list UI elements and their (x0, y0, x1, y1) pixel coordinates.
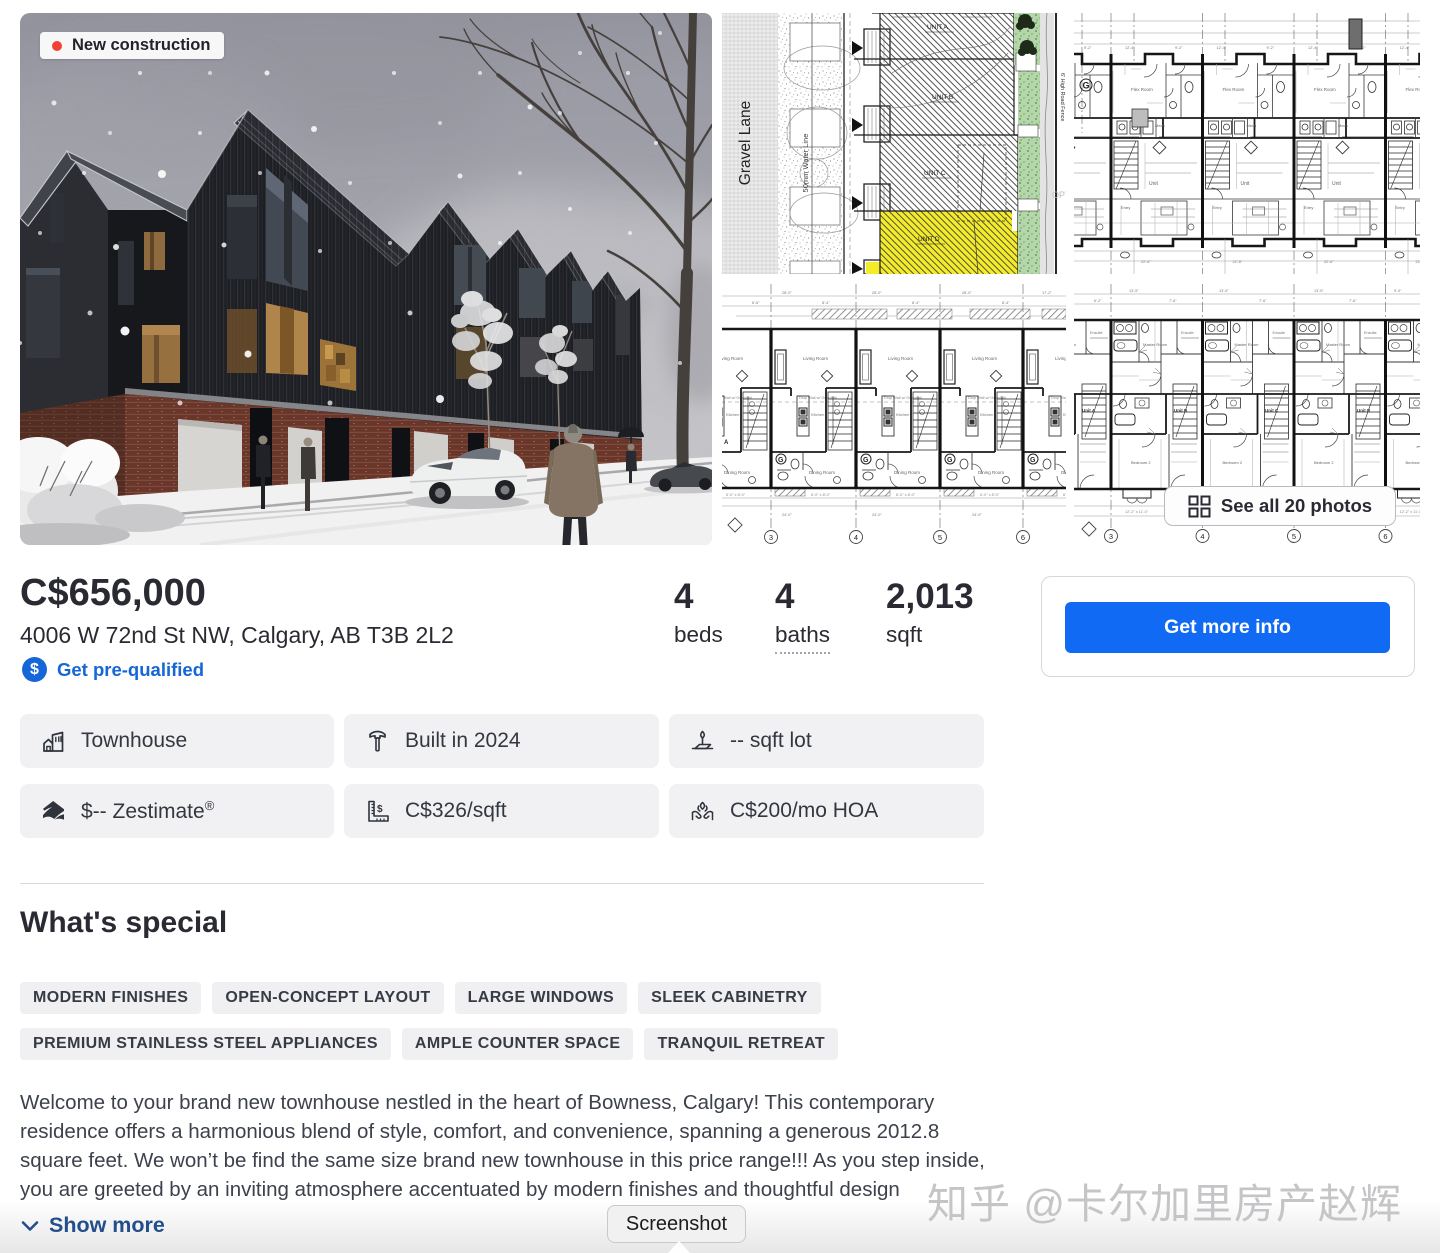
svg-text:OPT: OPT (1052, 190, 1066, 200)
svg-text:8'-4": 8'-4" (822, 301, 830, 305)
svg-text:28'-0": 28'-0" (962, 291, 972, 295)
svg-text:8'-4": 8'-4" (1002, 301, 1010, 305)
svg-text:4: 4 (1200, 532, 1204, 541)
svg-text:Unit B: Unit B (1174, 408, 1188, 413)
svg-text:UNIT B: UNIT B (932, 94, 953, 101)
svg-text:$: $ (377, 804, 383, 815)
svg-text:4: 4 (854, 533, 858, 542)
svg-text:50mm Water Line: 50mm Water Line (801, 134, 810, 193)
svg-text:Unit D: Unit D (1357, 408, 1371, 413)
svg-text:13'-5": 13'-5" (1219, 289, 1229, 293)
svg-text:UNIT A: UNIT A (927, 24, 948, 31)
svg-text:6: 6 (1383, 532, 1387, 541)
svg-text:6'-2": 6'-2" (1094, 299, 1102, 303)
svg-text:24'-0": 24'-0" (782, 513, 792, 517)
svg-text:5: 5 (1292, 532, 1296, 541)
svg-text:28'-0": 28'-0" (782, 291, 792, 295)
svg-text:7'-6": 7'-6" (1349, 299, 1357, 303)
svg-text:24'-0": 24'-0" (972, 513, 982, 517)
svg-text:3: 3 (1109, 532, 1113, 541)
svg-text:17'-2": 17'-2" (1042, 291, 1052, 295)
svg-text:Unit A: Unit A (1082, 408, 1096, 413)
svg-text:24'-0": 24'-0" (872, 513, 882, 517)
svg-text:Unit C: Unit C (1265, 408, 1279, 413)
svg-text:6' High Road Fence: 6' High Road Fence (1059, 73, 1065, 121)
svg-text:9'-0": 9'-0" (1394, 289, 1402, 293)
svg-text:7'-6": 7'-6" (1169, 299, 1177, 303)
svg-text:28'-0": 28'-0" (872, 291, 882, 295)
svg-text:3: 3 (769, 533, 773, 542)
svg-text:A: A (724, 440, 729, 446)
svg-text:5: 5 (938, 533, 942, 542)
svg-text:Gravel Lane: Gravel Lane (737, 101, 754, 185)
svg-text:13'-5": 13'-5" (1314, 289, 1324, 293)
svg-text:8'-4": 8'-4" (912, 301, 920, 305)
svg-text:13'-5": 13'-5" (1129, 289, 1139, 293)
svg-text:7'-6": 7'-6" (1259, 299, 1267, 303)
svg-text:UNIT C: UNIT C (924, 170, 946, 177)
svg-text:6: 6 (1021, 533, 1025, 542)
svg-text:UNIT D: UNIT D (918, 236, 940, 243)
svg-text:6'-6": 6'-6" (752, 301, 760, 305)
svg-text:G: G (1083, 81, 1090, 91)
